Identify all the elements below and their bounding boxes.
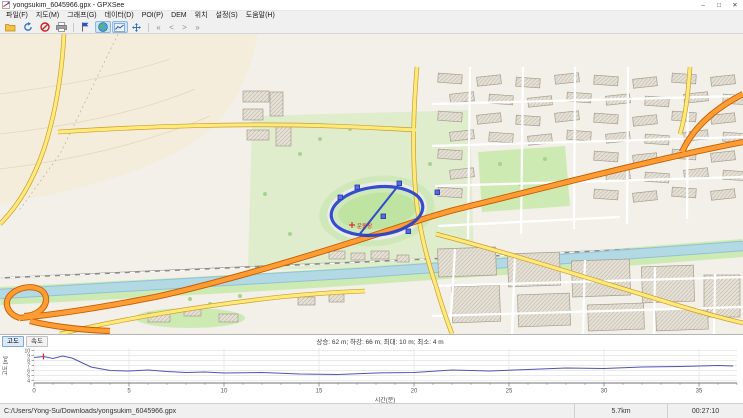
svg-text:35: 35 — [696, 389, 703, 395]
app-icon — [2, 1, 10, 9]
pan-arrows-icon — [131, 22, 142, 33]
first-file-button[interactable]: « — [152, 21, 165, 33]
status-bar: C:/Users/Yong-Su/Downloads/yongsukim_604… — [0, 403, 743, 418]
show-map-button[interactable] — [95, 21, 111, 33]
close-file-icon — [40, 22, 50, 32]
graph-tabs: 고도 속도 — [2, 336, 48, 347]
maximize-button[interactable]: □ — [711, 0, 727, 10]
status-duration: 00:27:10 — [667, 404, 743, 418]
menu-bar: 파일(F) 지도(M) 그래프(G) 데이터(D) POI(P) DEM 위치 … — [0, 11, 743, 21]
close-file-button[interactable] — [37, 21, 53, 33]
open-file-button[interactable] — [3, 21, 19, 33]
show-graphs-button[interactable] — [112, 21, 128, 33]
toolbar-separator — [73, 23, 74, 32]
reload-icon — [23, 22, 33, 32]
menu-item-poi[interactable]: POI(P) — [138, 11, 167, 21]
svg-text:10: 10 — [24, 348, 30, 354]
flag-icon — [81, 22, 90, 32]
print-button[interactable] — [54, 21, 70, 33]
graph-stats: 상승: 62 m; 하강: 66 m; 최대: 10 m; 최소: 4 m — [316, 337, 443, 346]
reload-button[interactable] — [20, 21, 36, 33]
previous-file-button[interactable]: < — [165, 21, 178, 33]
svg-text:10: 10 — [221, 389, 228, 395]
minimize-button[interactable]: – — [695, 0, 711, 10]
window-title: yongsukim_6045966.gpx - GPXSee — [13, 2, 695, 9]
menu-item-help[interactable]: 도움말(H) — [242, 11, 279, 21]
printer-icon — [56, 22, 67, 32]
svg-text:5: 5 — [127, 389, 131, 395]
map-canvas: 운동장 37.2862N 126.9670E, 24 m 0 100 200 m — [0, 34, 743, 334]
status-distance: 5.7km — [574, 404, 667, 418]
menu-item-map[interactable]: 지도(M) — [32, 11, 63, 21]
svg-text:20: 20 — [411, 389, 418, 395]
graph-ylabel: 고도 [m] — [2, 356, 9, 376]
pan-mode-button[interactable] — [129, 21, 145, 33]
folder-icon — [5, 23, 16, 32]
tab-speed[interactable]: 속도 — [26, 336, 48, 347]
tab-elevation[interactable]: 고도 — [2, 336, 24, 347]
toolbar-separator — [148, 23, 149, 32]
menu-item-graph[interactable]: 그래프(G) — [63, 11, 100, 21]
svg-text:25: 25 — [506, 389, 513, 395]
map-view[interactable]: 운동장 37.2862N 126.9670E, 24 m 0 100 200 m — [0, 34, 743, 334]
graph-xlabel: 시간(분) — [375, 396, 396, 404]
elevation-graph[interactable]: 상승: 62 m; 하강: 66 m; 최대: 10 m; 최소: 4 m 고도… — [0, 335, 743, 404]
menu-item-dem[interactable]: DEM — [167, 11, 191, 21]
next-file-button[interactable]: > — [178, 21, 191, 33]
elevation-graph-panel[interactable]: 고도 속도 상승: 62 m; 하강: 66 m; 최대: 10 m; 최소: … — [0, 334, 743, 403]
last-file-button[interactable]: » — [191, 21, 204, 33]
menu-item-data[interactable]: 데이터(D) — [101, 11, 138, 21]
menu-item-file[interactable]: 파일(F) — [2, 11, 32, 21]
graph-line — [34, 354, 733, 375]
svg-text:30: 30 — [601, 389, 608, 395]
close-button[interactable]: ✕ — [727, 0, 743, 10]
title-bar: yongsukim_6045966.gpx - GPXSee – □ ✕ — [0, 0, 743, 11]
menu-item-settings[interactable]: 설정(S) — [212, 11, 242, 21]
globe-icon — [98, 22, 108, 32]
graph-grid — [34, 348, 737, 383]
svg-text:15: 15 — [316, 389, 323, 395]
graph-icon — [114, 23, 125, 32]
svg-text:0: 0 — [32, 389, 36, 395]
menu-item-location[interactable]: 위치 — [191, 11, 212, 21]
toolbar: « < > » — [0, 21, 743, 34]
show-poi-button[interactable] — [78, 21, 94, 33]
status-file-path: C:/Users/Yong-Su/Downloads/yongsukim_604… — [0, 408, 574, 415]
poi-label: 운동장 — [357, 223, 372, 230]
